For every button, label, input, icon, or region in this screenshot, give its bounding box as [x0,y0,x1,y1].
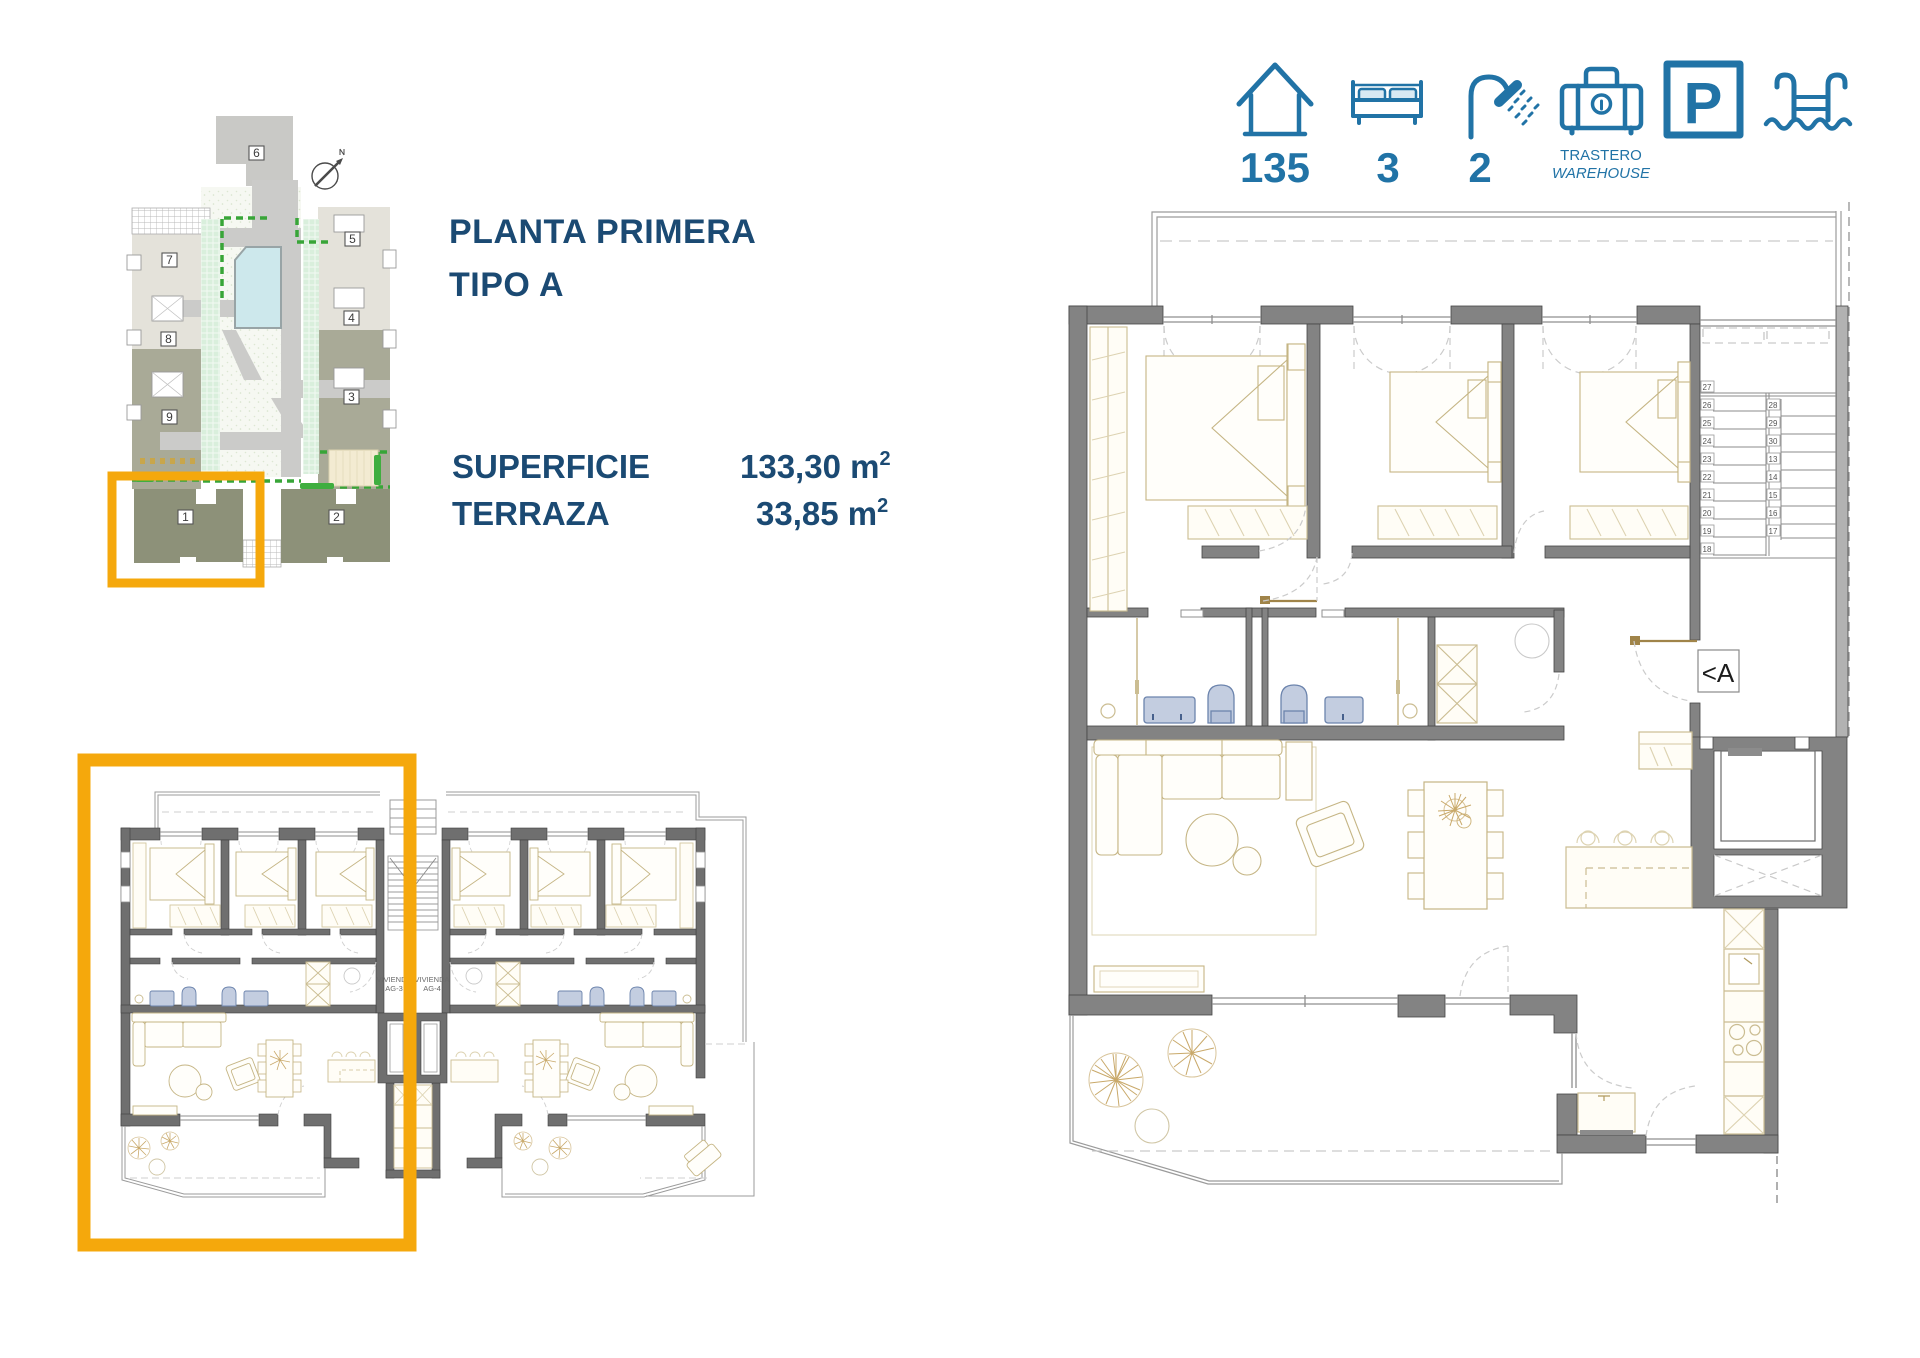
svg-text:30: 30 [1769,437,1778,446]
svg-text:9: 9 [166,410,173,424]
svg-text:TERRAZA: TERRAZA [452,495,610,532]
svg-text:25: 25 [1703,419,1712,428]
svg-text:19: 19 [1703,527,1712,536]
svg-text:TRASTERO: TRASTERO [1560,147,1642,164]
svg-text:4: 4 [348,311,355,325]
svg-text:<A: <A [1702,658,1735,688]
svg-text:P: P [1684,71,1723,136]
svg-text:SUPERFICIE: SUPERFICIE [452,448,650,485]
svg-text:TIPO A: TIPO A [449,266,564,304]
svg-text:133,30 m2: 133,30 m2 [740,448,891,485]
svg-text:13: 13 [1769,455,1778,464]
svg-text:WAREHOUSE: WAREHOUSE [1552,165,1651,182]
svg-text:26: 26 [1703,401,1712,410]
svg-text:VIVIENDA: VIVIENDA [414,975,449,984]
svg-text:17: 17 [1769,527,1778,536]
svg-text:18: 18 [1703,545,1712,554]
svg-text:2: 2 [1468,144,1491,191]
svg-text:22: 22 [1703,473,1712,482]
svg-text:33,85 m2: 33,85 m2 [756,495,888,532]
svg-text:29: 29 [1769,419,1778,428]
svg-text:21: 21 [1703,491,1712,500]
svg-text:24: 24 [1703,437,1712,446]
svg-text:AG-4: AG-4 [423,984,441,993]
svg-text:PLANTA PRIMERA: PLANTA PRIMERA [449,213,756,251]
svg-text:20: 20 [1703,509,1712,518]
svg-text:1: 1 [182,510,189,524]
svg-text:7: 7 [166,253,173,267]
svg-text:8: 8 [165,332,172,346]
svg-text:16: 16 [1769,509,1778,518]
svg-text:15: 15 [1769,491,1778,500]
svg-text:28: 28 [1769,401,1778,410]
svg-text:135: 135 [1240,144,1310,191]
svg-text:3: 3 [1376,144,1399,191]
svg-text:23: 23 [1703,455,1712,464]
svg-text:3: 3 [348,390,355,404]
svg-text:5: 5 [349,232,356,246]
svg-text:14: 14 [1769,473,1778,482]
svg-text:6: 6 [253,146,260,160]
svg-text:27: 27 [1703,383,1712,392]
svg-text:2: 2 [333,510,340,524]
svg-text:AG-3: AG-3 [385,984,403,993]
